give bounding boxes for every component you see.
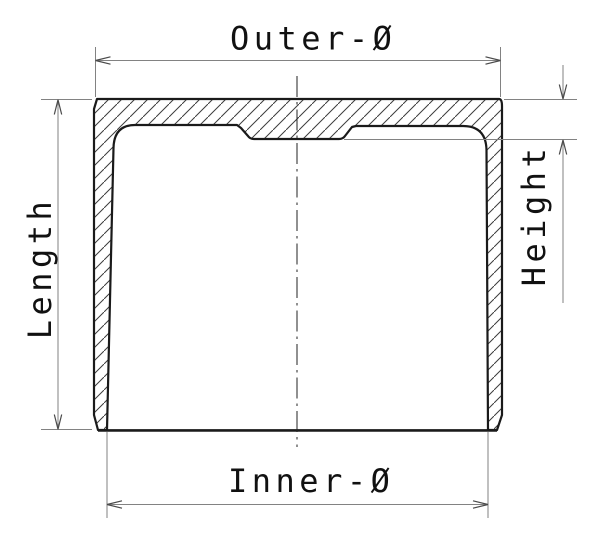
part-cross-section xyxy=(94,99,502,430)
length-dimension: Length xyxy=(21,100,92,430)
technical-drawing: Outer-Ø Inner-Ø Length xyxy=(0,0,600,553)
length-label: Length xyxy=(21,197,59,340)
height-label: Height xyxy=(515,144,553,287)
drawing-canvas: Outer-Ø Inner-Ø Length xyxy=(0,0,600,553)
tappet-part xyxy=(94,99,502,430)
inner-diameter-label: Inner-Ø xyxy=(228,462,394,500)
outer-diameter-label: Outer-Ø xyxy=(230,20,396,58)
outer-diameter-dimension: Outer-Ø xyxy=(96,20,501,98)
